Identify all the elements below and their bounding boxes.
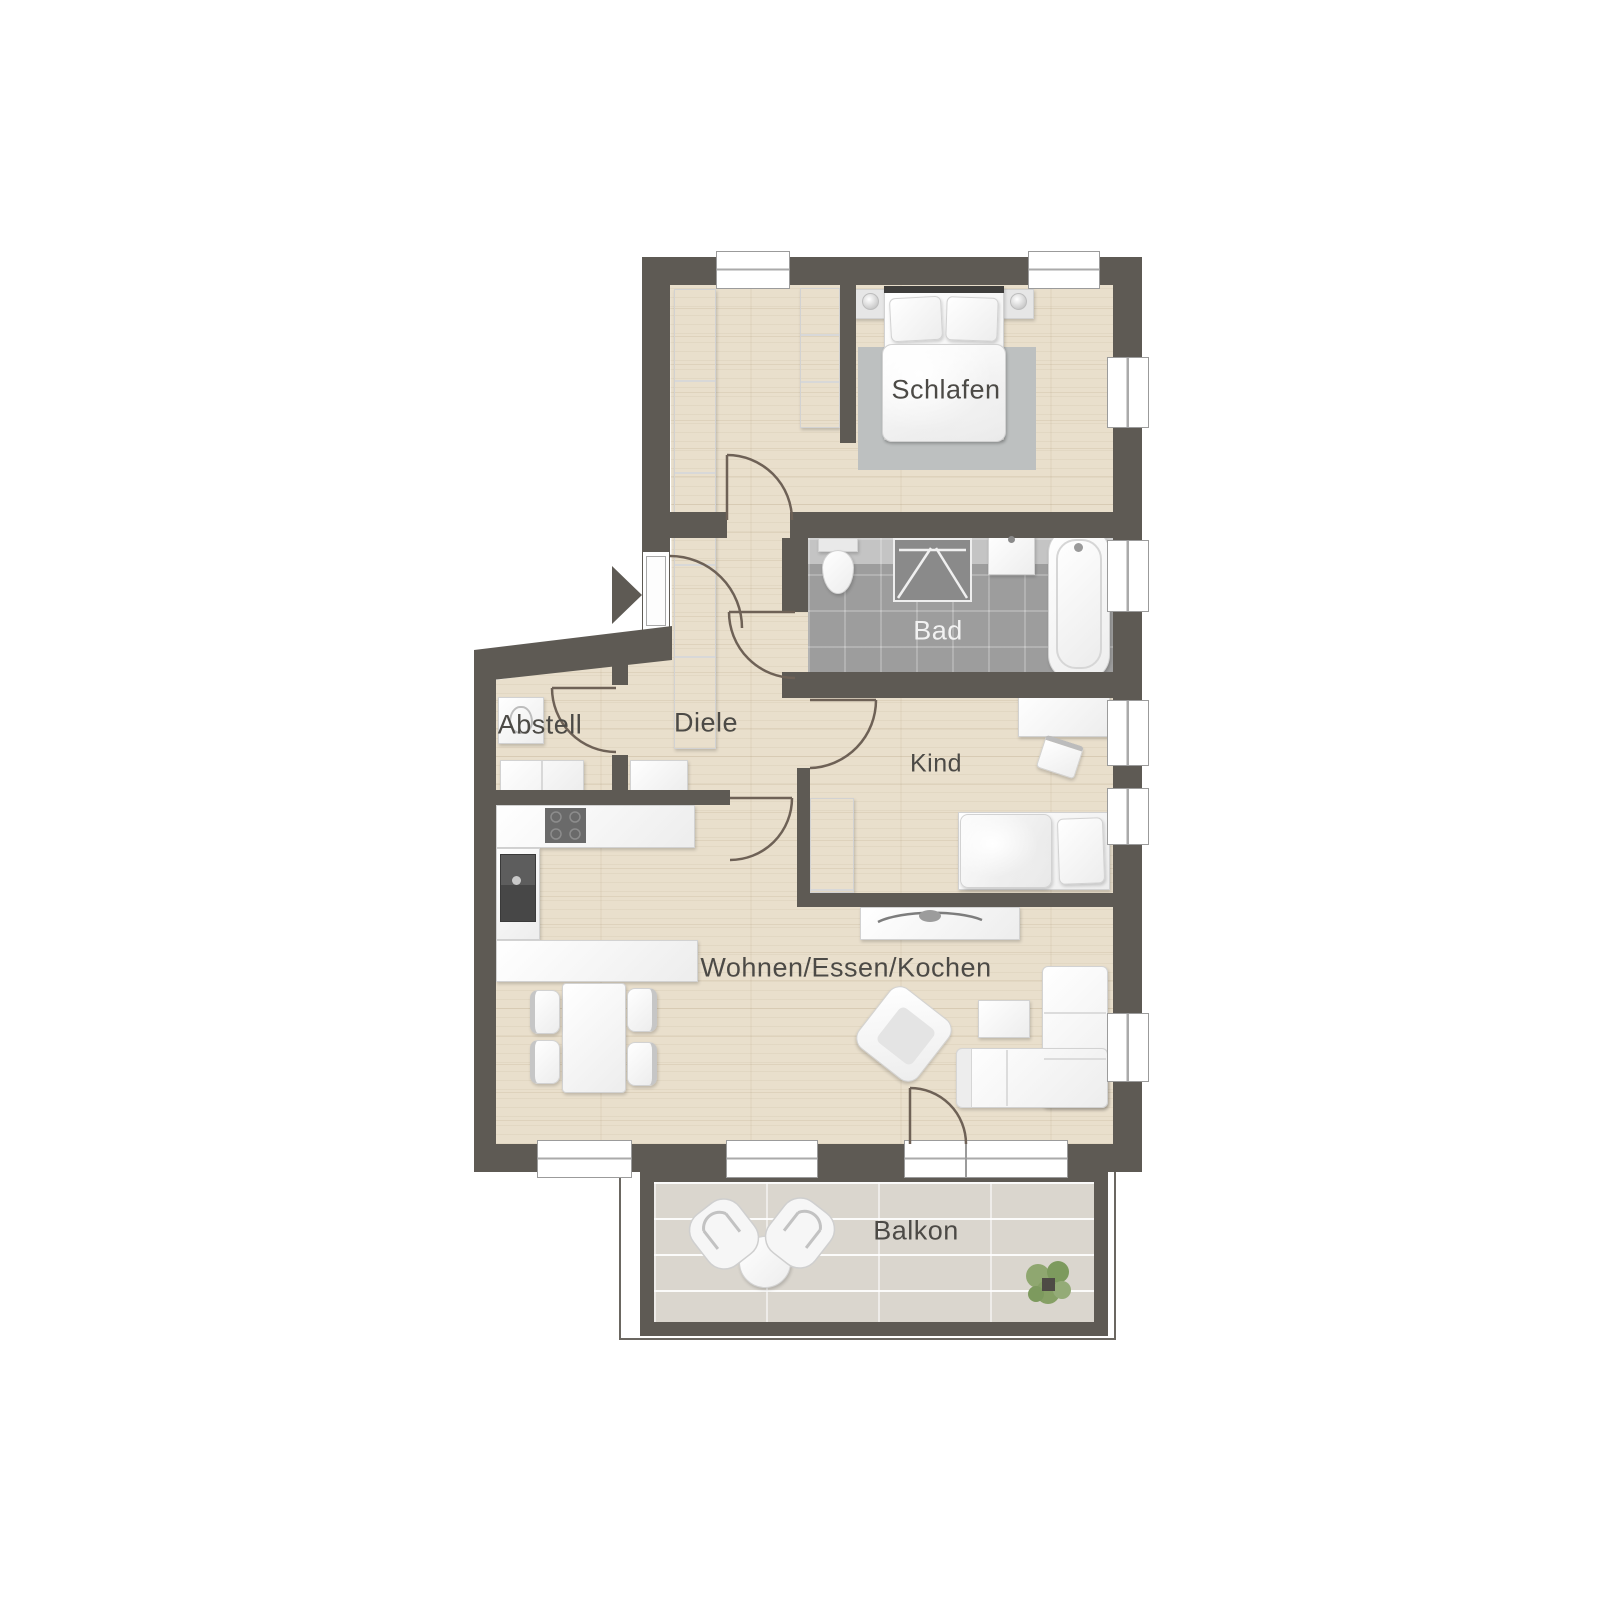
entrance-arrow-icon — [612, 566, 642, 624]
wall-diagonal — [474, 626, 672, 682]
cooktop-burners-icon — [551, 812, 580, 839]
plan-overlay — [0, 0, 1600, 1600]
room-label-balkon: Balkon — [873, 1216, 959, 1247]
bad-door — [729, 612, 795, 678]
balcony-door — [910, 1088, 966, 1144]
shower-glass-icon — [898, 548, 967, 598]
entrance-door — [670, 556, 742, 628]
kind-door — [810, 700, 876, 768]
balcony-chair-right-icon — [757, 1190, 842, 1276]
schlafen-door — [727, 455, 792, 520]
room-label-schlafen: Schlafen — [891, 375, 1000, 406]
plant-icon — [1026, 1261, 1071, 1304]
room-label-kind: Kind — [910, 750, 962, 779]
room-label-wohnen: Wohnen/Essen/Kochen — [700, 953, 991, 984]
room-label-diele: Diele — [674, 708, 738, 739]
floor-plan: Schlafen Bad Diele Abstell Kind Wohnen/E… — [0, 0, 1600, 1600]
wohnen-door — [730, 798, 792, 860]
sideboard-decor-icon — [878, 910, 982, 922]
balcony-chair-left-icon — [681, 1191, 766, 1277]
room-label-bad: Bad — [913, 616, 963, 647]
room-label-abstell: Abstell — [498, 710, 583, 741]
